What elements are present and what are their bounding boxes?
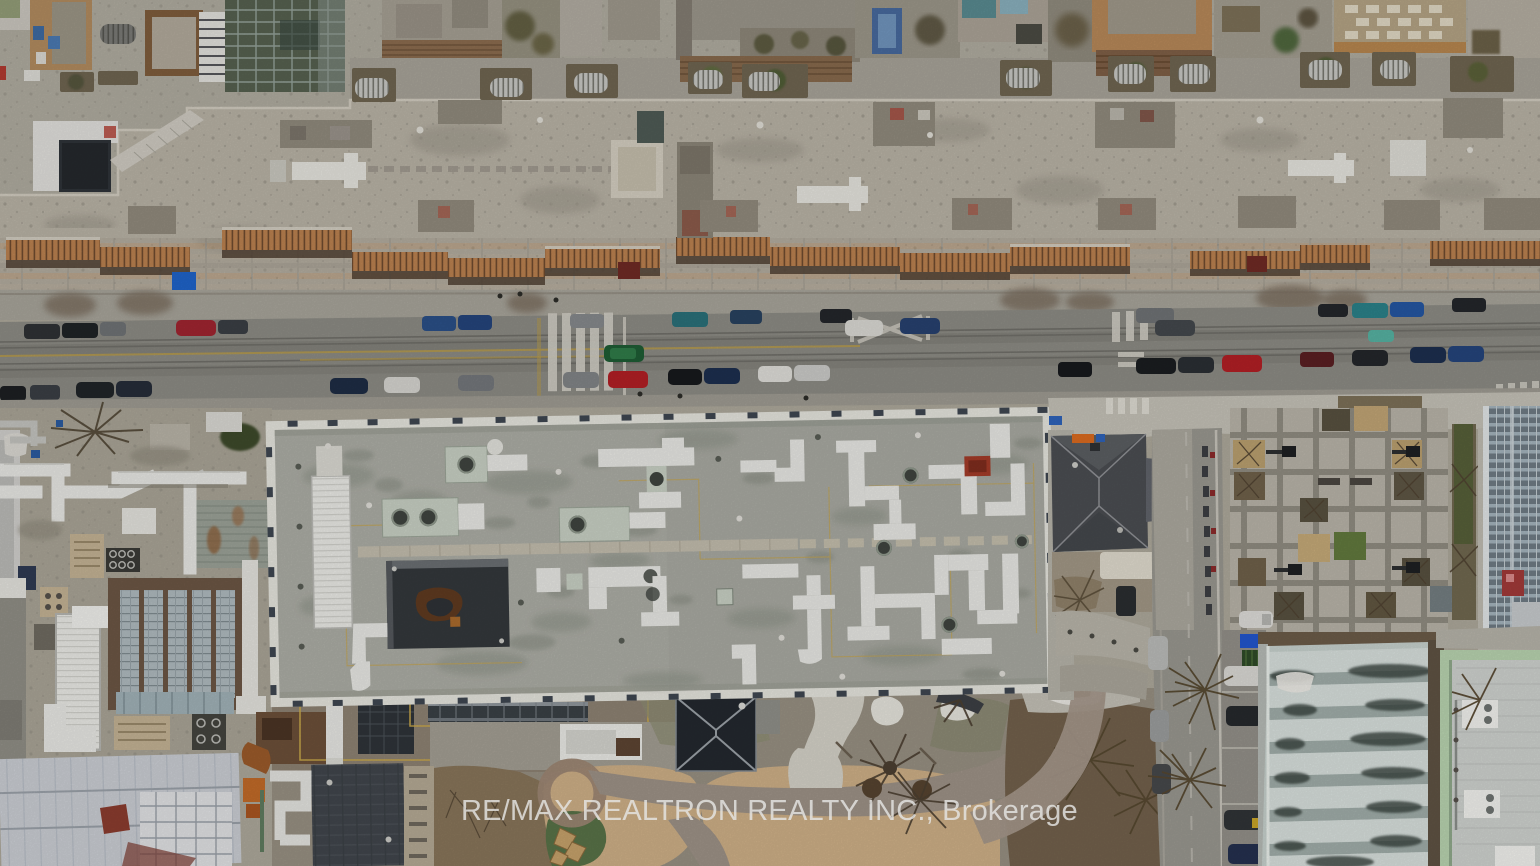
svg-text:RE/MAX REALTRON REALTY INC., B: RE/MAX REALTRON REALTY INC., Brokerage [461, 795, 1078, 827]
